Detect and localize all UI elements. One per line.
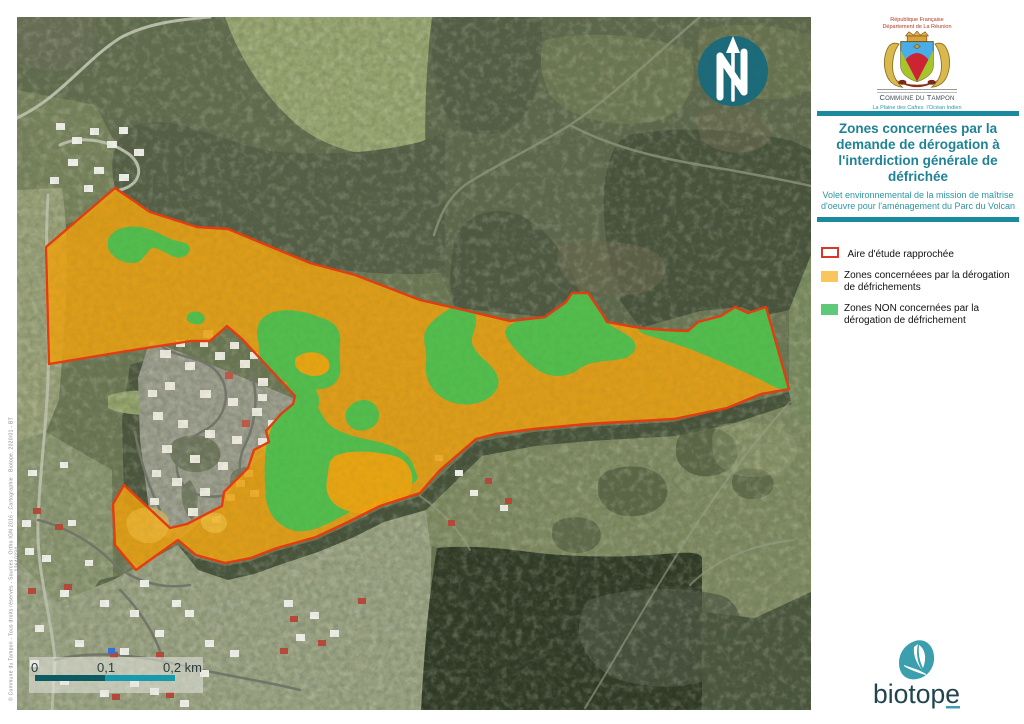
svg-text:0,1: 0,1	[97, 660, 115, 675]
svg-text:biotope: biotope	[873, 679, 960, 709]
svg-text:0: 0	[31, 660, 38, 675]
svg-text:0,2 km: 0,2 km	[163, 660, 202, 675]
